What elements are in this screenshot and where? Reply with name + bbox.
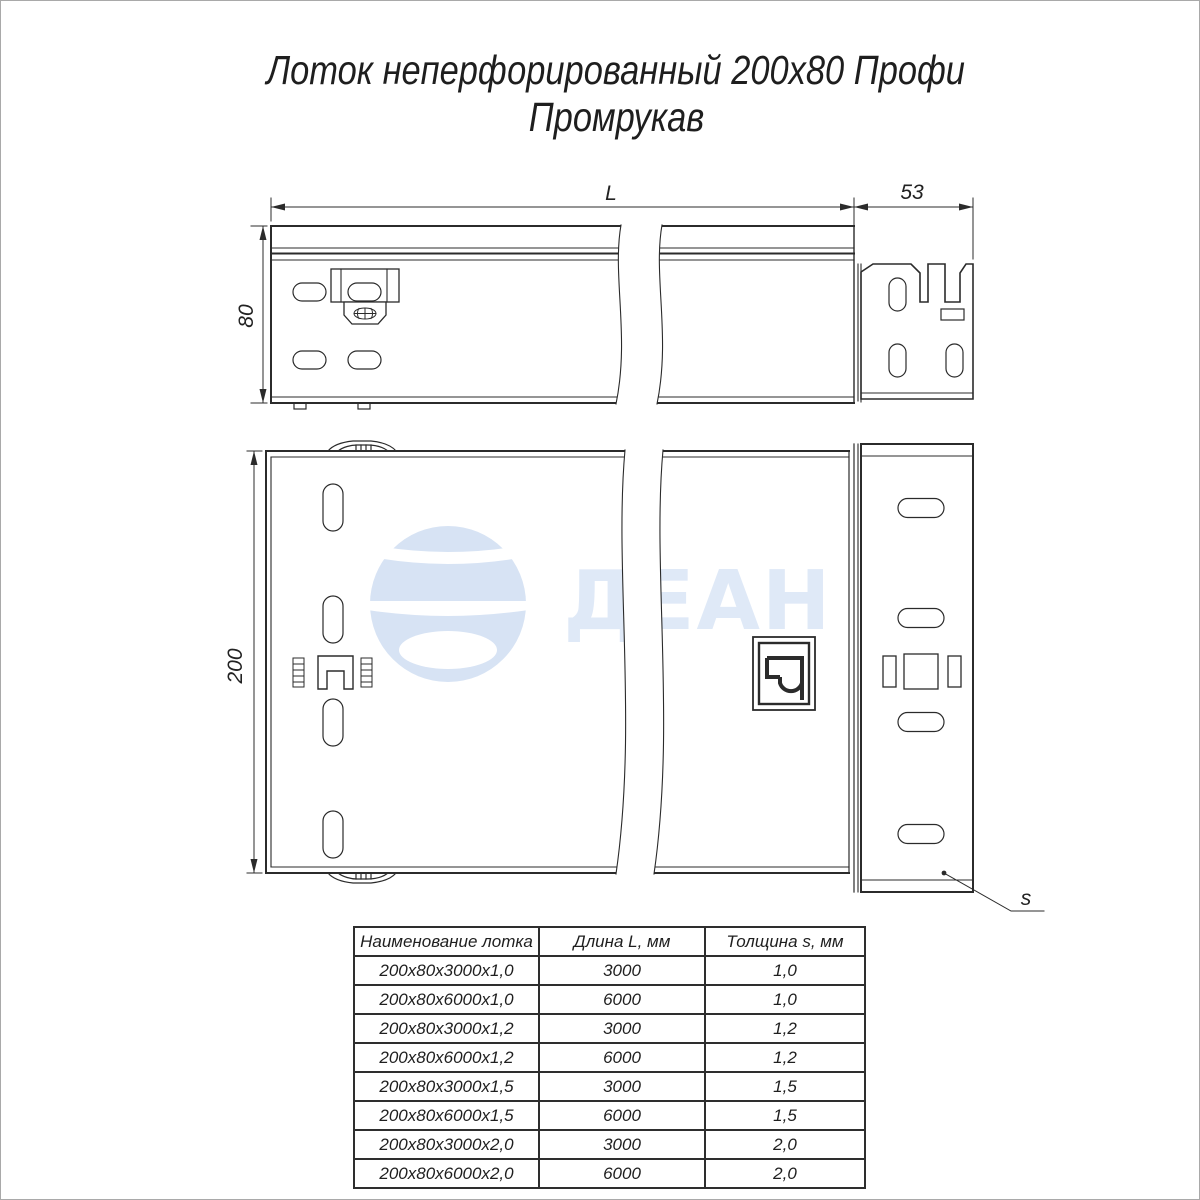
table-cell: 200х80х6000х1,0 — [354, 985, 539, 1014]
table-cell: 6000 — [539, 985, 705, 1014]
col-header-thickness: Толщина s, мм — [705, 927, 865, 956]
hatched-clip — [361, 658, 372, 687]
table-cell: 1,5 — [705, 1072, 865, 1101]
table-cell: 6000 — [539, 1159, 705, 1188]
dim-label-s: s — [1021, 887, 1032, 910]
table-cell: 2,0 — [705, 1159, 865, 1188]
table-cell: 1,2 — [705, 1014, 865, 1043]
side-view: L 53 80 — [235, 181, 973, 409]
table-cell: 3000 — [539, 956, 705, 985]
spec-table: Наименование лотка Длина L, мм Толщина s… — [353, 926, 866, 1189]
table-row: 200х80х3000х2,030002,0 — [354, 1130, 865, 1159]
col-header-name: Наименование лотка — [354, 927, 539, 956]
table-cell: 200х80х3000х1,0 — [354, 956, 539, 985]
table-cell: 1,0 — [705, 985, 865, 1014]
table-cell: 1,2 — [705, 1043, 865, 1072]
table-cell: 1,5 — [705, 1101, 865, 1130]
table-cell: 200х80х3000х1,2 — [354, 1014, 539, 1043]
dim-label-53: 53 — [900, 181, 924, 204]
promrukav-stamp-icon — [753, 637, 815, 710]
end-flange — [854, 444, 973, 892]
end-connector — [858, 264, 973, 402]
dean-logo-sphere-icon — [361, 511, 535, 696]
table-row: 200х80х3000х1,530001,5 — [354, 1072, 865, 1101]
table-cell: 3000 — [539, 1072, 705, 1101]
col-header-length: Длина L, мм — [539, 927, 705, 956]
plan-view: 200 s — [224, 441, 1044, 911]
watermark-text: ДЕАН — [563, 554, 832, 649]
drawing-page: Лоток неперфорированный 200х80 Профи Про… — [0, 0, 1200, 1200]
spec-table-header-row: Наименование лотка Длина L, мм Толщина s… — [354, 927, 865, 956]
table-row: 200х80х3000х1,030001,0 — [354, 956, 865, 985]
break-gap — [616, 225, 663, 404]
table-cell: 6000 — [539, 1043, 705, 1072]
dim-label-80: 80 — [235, 304, 258, 328]
dimension-200 — [247, 451, 262, 873]
dim-label-L: L — [605, 182, 617, 205]
table-cell: 200х80х3000х1,5 — [354, 1072, 539, 1101]
latch-bump-bottom — [328, 873, 396, 883]
table-cell: 200х80х3000х2,0 — [354, 1130, 539, 1159]
hatched-clip — [293, 658, 304, 687]
table-cell: 200х80х6000х2,0 — [354, 1159, 539, 1188]
latch-bump-top — [328, 441, 396, 451]
table-cell: 3000 — [539, 1130, 705, 1159]
table-row: 200х80х6000х1,560001,5 — [354, 1101, 865, 1130]
table-cell: 1,0 — [705, 956, 865, 985]
dimension-53 — [854, 198, 973, 259]
table-cell: 3000 — [539, 1014, 705, 1043]
table-row: 200х80х6000х1,060001,0 — [354, 985, 865, 1014]
dim-label-200: 200 — [224, 648, 247, 684]
table-row: 200х80х3000х1,230001,2 — [354, 1014, 865, 1043]
table-row: 200х80х6000х2,060002,0 — [354, 1159, 865, 1188]
table-cell: 200х80х6000х1,2 — [354, 1043, 539, 1072]
table-row: 200х80х6000х1,260001,2 — [354, 1043, 865, 1072]
table-cell: 200х80х6000х1,5 — [354, 1101, 539, 1130]
table-cell: 2,0 — [705, 1130, 865, 1159]
table-cell: 6000 — [539, 1101, 705, 1130]
center-bracket — [293, 656, 372, 689]
mini-globe-icon — [354, 308, 376, 319]
dimension-L — [271, 198, 854, 259]
